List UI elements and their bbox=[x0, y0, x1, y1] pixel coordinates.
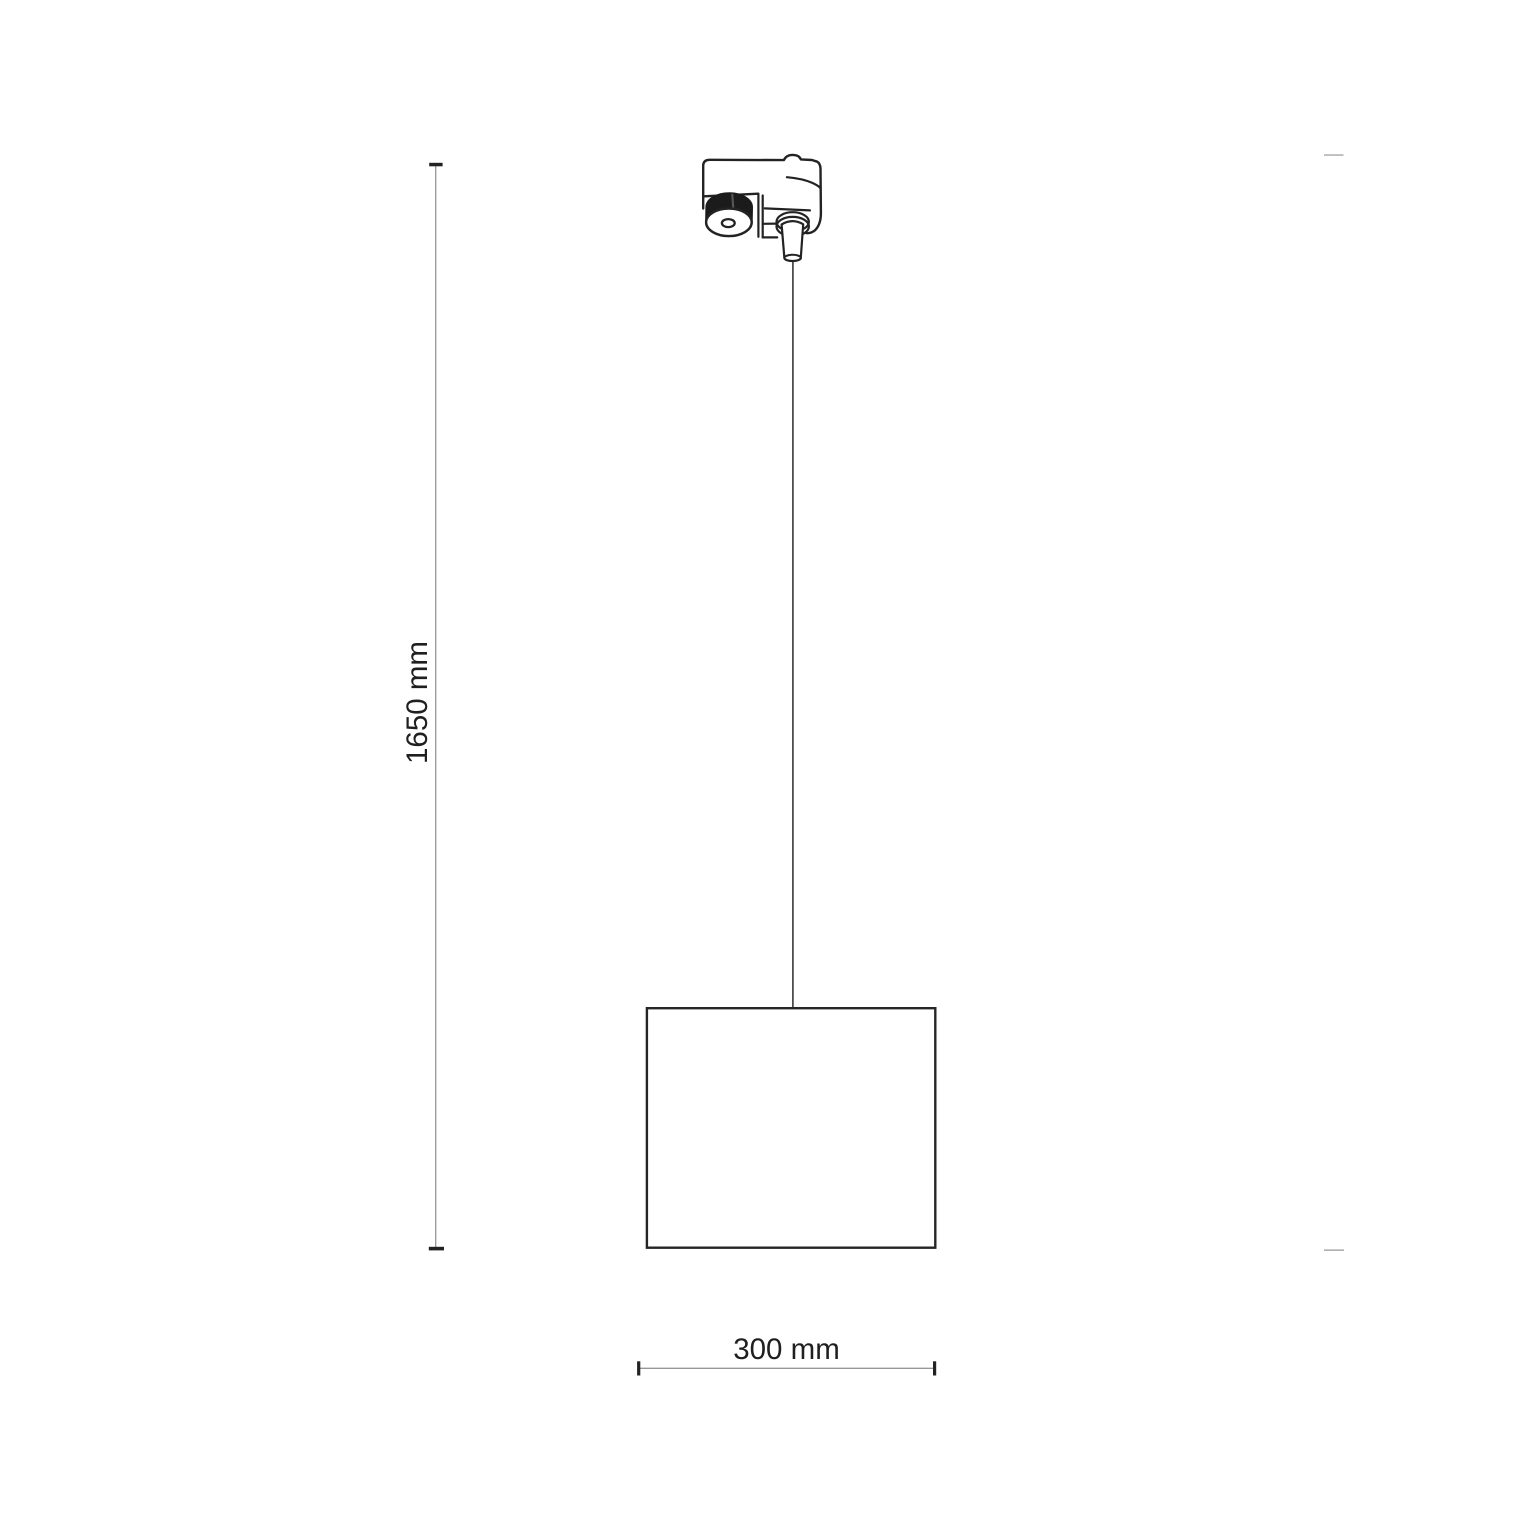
svg-text:1650 mm: 1650 mm bbox=[401, 641, 434, 764]
svg-text:300 mm: 300 mm bbox=[733, 1333, 840, 1366]
